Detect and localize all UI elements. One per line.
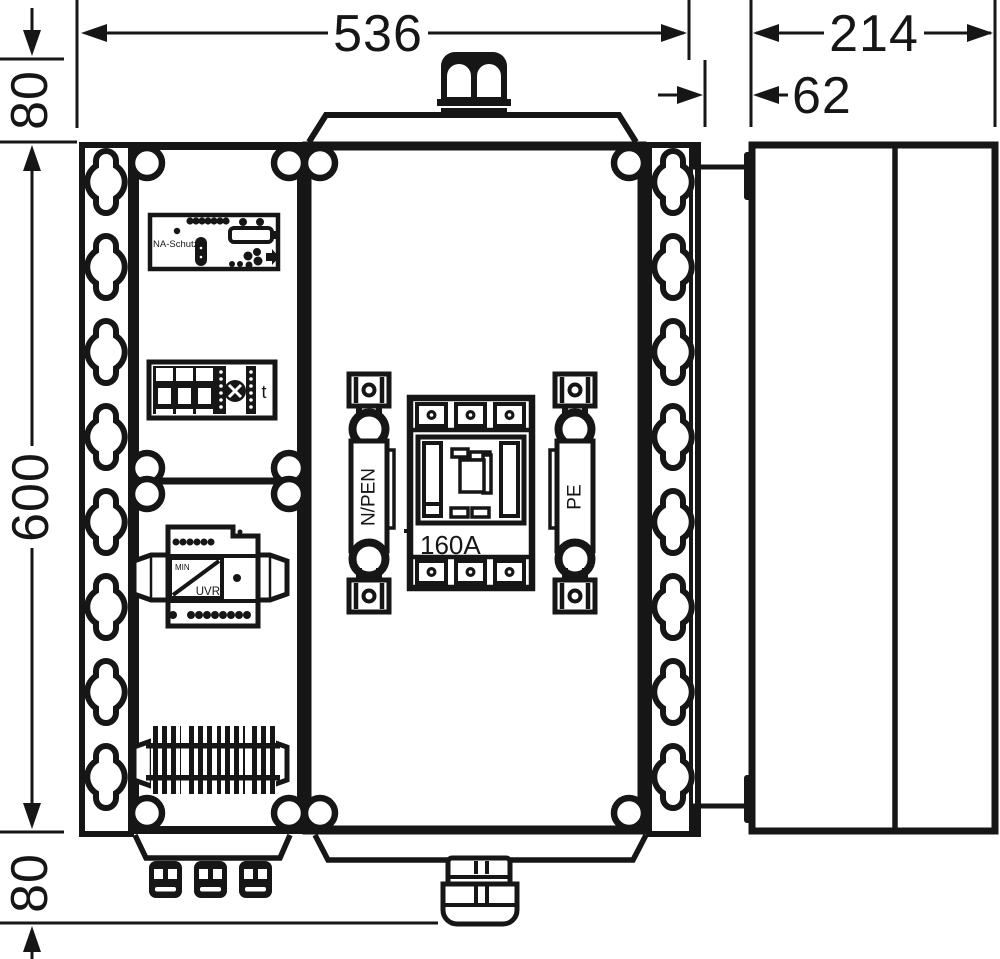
breaker-top-terminals	[417, 404, 524, 426]
uvr-label: UVR	[196, 586, 220, 598]
small-cable-glands	[149, 861, 272, 898]
side-view-body	[752, 145, 995, 831]
display-window-icon	[230, 228, 272, 242]
dim-depth-value: 214	[829, 5, 919, 63]
uvr-module: MIN UVR	[168, 527, 258, 626]
corner-screw-icon	[274, 798, 304, 828]
mounting-flange-left	[82, 145, 131, 834]
dim-cover-value: 62	[792, 67, 852, 125]
corner-screw-icon	[614, 148, 644, 178]
cable-gland-top-icon	[437, 52, 511, 115]
corner-screw-icon	[274, 148, 304, 178]
dim-bottom-offset-value: 80	[1, 853, 59, 913]
pe-label: PE	[565, 484, 586, 509]
terminal-t-label: t	[261, 382, 266, 402]
corner-screw-icon	[274, 479, 304, 509]
npen-label: N/PEN	[359, 468, 380, 526]
corner-screw-icon	[132, 798, 162, 828]
left-box-bottom-flange	[135, 835, 290, 858]
comb-terminal-block	[146, 726, 280, 794]
dim-top-offset-value: 80	[1, 70, 59, 130]
small-gland-icon	[149, 861, 182, 898]
na-schutz-module: NA-Schutz	[150, 215, 279, 269]
corner-screw-icon	[614, 798, 644, 828]
corner-screw-icon	[305, 148, 335, 178]
small-gland-icon	[239, 861, 272, 898]
dim-width-value: 536	[333, 5, 423, 63]
corner-screw-icon	[305, 798, 335, 828]
breaker-bottom-terminals	[417, 561, 524, 583]
terminal-block-t: t	[149, 362, 275, 418]
drawing-canvas: NA-Schutz t	[0, 0, 1000, 959]
enclosure-technical-drawing: NA-Schutz t	[0, 0, 1000, 959]
corner-screw-icon	[132, 479, 162, 509]
small-gland-icon	[194, 861, 227, 898]
circuit-breaker-160a: 160A	[404, 398, 532, 588]
dim-height-value: 600	[2, 452, 60, 542]
uvr-min-label: MIN	[175, 563, 190, 572]
cable-gland-bottom-icon	[443, 858, 517, 924]
na-schutz-label: NA-Schutz	[153, 239, 199, 250]
corner-screw-icon	[132, 148, 162, 178]
main-box-lid	[309, 115, 636, 142]
